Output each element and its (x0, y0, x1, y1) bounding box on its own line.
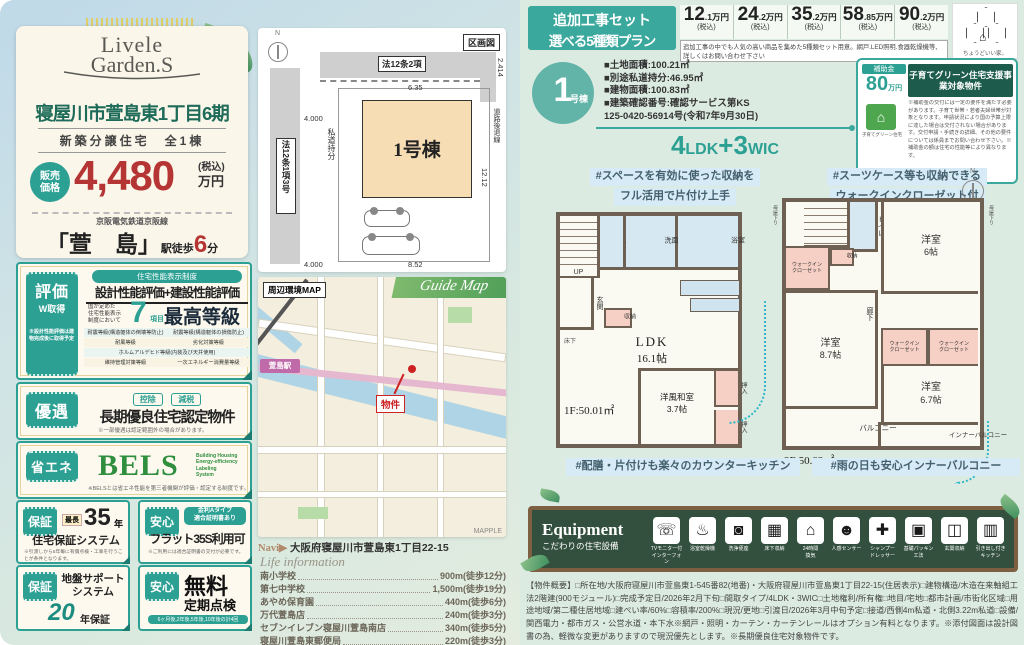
tab-label: 評価 (26, 278, 78, 302)
stairs-1f: UP (560, 216, 600, 278)
badge-tab-anshin2: 安心 (145, 572, 179, 601)
washlet-icon: ◙ (725, 517, 752, 544)
equip-label2: インターフォン (652, 553, 682, 566)
badge-ground-support: 保証 地盤サポート システム 20 年保証 (16, 565, 130, 631)
wic-label2: クローゼット (930, 347, 978, 353)
wic-label-wrap: ウォークインクローゼット (930, 341, 978, 354)
inspection-label: 定期点検 (184, 595, 236, 614)
tax-cut-pill: 減税 (171, 393, 201, 406)
life-item: 南小学校900m(徒歩12分) (260, 570, 506, 583)
dim-right: 12.12 (480, 168, 489, 187)
bels-sub4: System (196, 472, 238, 478)
perf-item: 耐震等級(構造躯体の倒壊等防止) (84, 328, 167, 337)
equipment-title: Equipment (542, 520, 623, 540)
bedroom-size: 8.7帖 (786, 350, 875, 361)
guide-map-title: Guide Map (418, 278, 489, 294)
wic-label2: クローゼット (883, 347, 926, 353)
poi-distance: 220m (445, 635, 468, 645)
subsidy-amount: 補助金 80万円 (862, 64, 906, 95)
long-term-housing-label: 長期優良住宅認定物件 (84, 406, 250, 427)
badge-tab-shouene: 省エネ (26, 451, 78, 482)
equip-label: 床下収納 (764, 546, 784, 552)
equip-label: 玄関収納 (944, 546, 964, 552)
price-tax: (税込) (841, 24, 894, 31)
price-main: 12 (684, 4, 705, 25)
station-access: 「萱 島」駅徒歩6分 (16, 225, 248, 259)
navi-address-text: 大阪府寝屋川市萱島東1丁目22-15 (290, 542, 449, 554)
leader-dots (388, 622, 443, 632)
price-label-1: 販売 (30, 171, 70, 183)
map-credit: MAPPLE (474, 528, 502, 535)
additional-works-banner: 追加工事セット 選べる5種類プラン (528, 6, 676, 50)
warranty-years-unit: 年 (114, 517, 123, 530)
banner-line2: 選べる5種類プラン (528, 30, 676, 50)
plan1f-caption-bottom: #配膳・片付けも楽々のカウンターキッチン (566, 458, 800, 476)
site-plan-card: 区画図 N 法12条2項 法12条1項3号 私道持分 道路後退線 1号棟 6.3… (258, 28, 506, 272)
map-road (258, 447, 506, 453)
poi-walk: (徒歩6分) (468, 596, 506, 609)
poi-name: 南小学校 (260, 570, 296, 583)
price-tax: (税込) (198, 162, 225, 174)
equipment-subtitle: こだわりの住宅設備 (542, 540, 623, 552)
spec-private-road: ■別途私道持分:46.95㎡ (604, 73, 854, 86)
price-sub: .2万円 (920, 12, 944, 22)
map-road (438, 277, 443, 537)
price-sub: .1万円 (705, 12, 729, 22)
road-dashed-line (320, 80, 480, 82)
guide-map: 萱島駅 物件 Guide Map 周辺環境MAP MAPPLE (258, 277, 506, 537)
poi-walk: (徒歩19分) (463, 583, 506, 596)
price-sub: .2万円 (759, 12, 783, 22)
ground-line2: システム (60, 586, 126, 599)
flat35-pill: 金利Aタイプ 適合証明書あり (184, 507, 246, 525)
drawer-kitchen-icon: ▥ (977, 517, 1004, 544)
property-overview-text: 【物件概要】□所在地/大阪府寝屋川市萱島東1-545番82(地番)・大阪府寝屋川… (526, 580, 1018, 644)
poi-distance: 340m (445, 622, 468, 635)
equipment-title-block: Equipment こだわりの住宅設備 (542, 520, 623, 552)
building-number-badge: 1 号棟 (532, 62, 594, 124)
bels-sub2: Energy-efficiency (196, 459, 238, 465)
certificate: 適合証明書あり (184, 516, 246, 524)
station-walk-unit: 分 (207, 243, 218, 255)
perf-row: ホルムアルデヒド等級(内装及び天井使用) (84, 348, 250, 357)
equip-drawer-kitchen: ▥引き出し付きキッチン (974, 517, 1007, 559)
layout-4: 4 (671, 130, 685, 160)
plan-prices: 12.1万円(税込) 24.2万円(税込) 35.2万円(税込) 58.85万円… (680, 5, 948, 39)
equip-bath-dryer: ♨浴室乾燥機 (686, 517, 719, 553)
rate-type: 金利Aタイプ (184, 508, 246, 516)
navi-address: Navi▶ 大阪府寝屋川市萱島東1丁目22-15 (258, 540, 506, 555)
equip-label: 人感センサー (831, 546, 861, 552)
poi-distance: 440m (445, 596, 468, 609)
price-main: 35 (791, 4, 812, 25)
equip-entrance-storage: ◫玄関収納 (938, 517, 971, 553)
divider (32, 212, 232, 214)
bathroom-1f: 浴室 (678, 216, 738, 270)
caption-line1: #スーツケース等も収納できる (827, 168, 987, 186)
badge-tab-yuuguu: 優遇 (26, 392, 78, 428)
performance-pre-text: 国が定めた 住宅性能表示 制度において (88, 304, 128, 325)
spec-confirmation-1: ■建築確認番号:確認サービス第KS (604, 98, 854, 111)
station-marker: 萱島駅 (260, 359, 300, 373)
plan-price: 24.2万円(税込) (733, 5, 787, 39)
perf-item: 耐震等級(構造躯体の損傷防止) (167, 328, 250, 337)
equip-motion-sensor: ☻人感センサー (830, 517, 863, 553)
park-patch (298, 507, 328, 519)
underfloor-storage-icon: ▦ (761, 517, 788, 544)
life-info-title: Life information (260, 554, 506, 570)
perf-item: 維持管理対策等級 (84, 358, 167, 367)
performance-items-table: 耐震等級(構造躯体の倒壊等防止)耐震等級(構造躯体の損傷防止) 耐風等級劣化対策… (84, 328, 250, 368)
leader-dots (307, 583, 430, 593)
plan-price: 35.2万円(税込) (787, 5, 841, 39)
tab-note: ※設計性能評価は建物完成後に取得予定 (26, 329, 78, 342)
building-1-label: 1号棟 (363, 135, 471, 162)
plan-price: 12.1万円(税込) (680, 5, 733, 39)
bels-note: ※BELSとは省エネ性能を第三者機関が評価・認定する制度です。 (88, 484, 249, 492)
poi-distance: 1,500m (432, 583, 463, 596)
bels-wordmark: BELS (98, 449, 179, 483)
hexagon-icon (988, 23, 1006, 43)
wic-2f: ウォークインクローゼット (928, 328, 978, 366)
bedroom-87-label-wrap: 洋室8.7帖 (786, 338, 875, 362)
floor-plan-1f: UP トイレ 洗面所 浴室 玄関 床下 収納 LDK 16.1帖 洋風和室 3.… (556, 212, 742, 448)
leader-dots (298, 570, 438, 580)
bedroom-size: 6帖 (884, 247, 978, 258)
tab-label: 保証 (28, 515, 52, 529)
shampoo-dresser-icon: ✚ (869, 517, 896, 544)
layout-ldk: LDK (685, 141, 718, 158)
storage-label: 収納 (842, 254, 862, 261)
ldk-label: LDK (622, 334, 682, 350)
toilet-2f: トイレ (850, 202, 878, 252)
equip-label: TVモニター付 (651, 546, 682, 552)
bedroom-67-label-wrap: 洋室6.7帖 (884, 382, 978, 406)
equip-packing-method: ▣基礎パッキン工法 (902, 517, 935, 559)
caption-line1: #スペースを有効に使った収納を (590, 168, 761, 186)
guide-map-banner: Guide Map (392, 277, 506, 298)
equip-shampoo-dresser: ✚シャンプードレッサー (866, 517, 899, 559)
flat35-label: フラット35S利用可 (146, 530, 248, 547)
warranty-years: 35 (84, 504, 111, 532)
spec-confirmation-2: 125-0420-56914号(令和7年9月30日) (604, 111, 854, 124)
perf-row: 耐風等級劣化対策等級 (84, 338, 250, 347)
deduction-pill: 控除 (133, 393, 163, 406)
hexagon-icon (977, 7, 995, 27)
perf-row: 耐震等級(構造躯体の倒壊等防止)耐震等級(構造躯体の損傷防止) (84, 328, 250, 337)
entrance-label: 玄関 (572, 296, 603, 310)
equip-label: 洗浄便座 (728, 546, 748, 552)
badge-tab-hoshou2: 保証 (23, 572, 57, 601)
poi-distance: 240m (445, 609, 468, 622)
price-label-badge: 販売 価格 (30, 162, 70, 202)
plan1f-caption-top: #スペースを有効に使った収納を フル活用で片付け上手 (570, 166, 780, 206)
plan-price: 90.2万円(税込) (894, 5, 948, 39)
layout-3: 3 (733, 130, 747, 160)
navi-prefix: Navi▶ (258, 543, 287, 554)
badge-flat35s: 安心 金利Aタイプ 適合証明書あり フラット35S利用可 ※ご利用には適合証明書… (138, 500, 252, 564)
perf-item: 劣化対策等級 (167, 338, 250, 347)
property-marker: 物件 (376, 395, 405, 413)
poi-walk: (徒歩3分) (468, 635, 506, 645)
toilet-1f: トイレ (600, 216, 626, 270)
yuuguu-note: ※一部優遇は認定範囲外の場合があります。 (98, 426, 207, 434)
spec-building-area: ■建物面積:100.83㎡ (604, 85, 854, 98)
wic-2f: ウォークインクローゼット (786, 246, 830, 290)
subsidy-unit: 万円 (888, 85, 902, 92)
price-label-2: 価格 (30, 183, 70, 195)
pre3: 制度において (88, 318, 128, 325)
surroundings-map-label: 周辺環境MAP (263, 282, 326, 298)
floor-plan-2f: トイレ 洋室6帖 ウォークインクローゼット 収納 廊下 洋室8.7帖 ウォークイ… (782, 198, 984, 450)
price-main: 90 (899, 4, 920, 25)
equip-label: 基礎パッキン (904, 546, 934, 552)
kitchen-counter (680, 280, 740, 296)
life-information: Life information 南小学校900m(徒歩12分) 第七中学校1,… (260, 554, 506, 645)
floor-layout: 4LDK+3WIC (640, 130, 810, 161)
station-name: 「萱 島」 (46, 231, 161, 257)
price-main: 58 (843, 4, 864, 25)
perf-row: 維持管理対策等級一次エネルギー消費量等級 (84, 358, 250, 367)
entrance-1f: 玄関 (560, 278, 594, 330)
dim-left: 4.000 (304, 114, 323, 123)
life-item: 寝屋川萱島東郵便局220m(徒歩3分) (260, 635, 506, 645)
layout-plus: + (718, 130, 733, 160)
stairs-up-label: UP (560, 269, 597, 276)
house-icon: ⌂ (979, 30, 986, 44)
bathroom-label: 浴室 (708, 237, 768, 246)
price-unit: (税込) 万円 (198, 162, 225, 190)
warranty-note: ※引渡しから5年毎に有償点検・工事を行うことが条件となります。 (24, 548, 124, 562)
area-1f: 1F:50.01㎡ (564, 402, 614, 418)
building-suffix: 号棟 (570, 92, 588, 105)
caption-line2: フル活用で片付け上手 (614, 188, 736, 206)
setback-line-label: 道路後退線 (491, 108, 501, 143)
building-specs: ■土地面積:100.21㎡ ■別途私道持分:46.95㎡ ■建物面積:100.8… (604, 60, 854, 124)
station-name-label: 萱島駅 (269, 361, 292, 370)
compass-icon (268, 42, 288, 62)
equip-label: シャンプー (870, 546, 895, 552)
station-walk-minutes: 6 (194, 231, 207, 258)
layout-wic: WIC (748, 141, 779, 158)
brand-tagline: ちょうどいい家。 (953, 49, 1017, 57)
badge-long-term-certified: 優遇 控除 減税 長期優良住宅認定物件 ※一部優遇は認定範囲外の場合があります。 (16, 382, 252, 440)
poi-name: 万代萱島店 (260, 609, 305, 622)
flyer-page: Livele Garden.S 寝屋川市萱島東1丁目6期 新築分譲住宅 全1棟 … (0, 0, 1024, 645)
stairs-2f (804, 202, 850, 248)
storage-label: 収納 (618, 314, 642, 322)
equip-underfloor-storage: ▦床下収納 (758, 517, 791, 553)
compass-n-label: N (275, 30, 280, 37)
badge-bels: 省エネ BELS Building Housing Energy-efficie… (16, 441, 252, 499)
poi-walk: (徒歩12分) (463, 570, 506, 583)
equip-24h-ventilation: ⌂24時間換気 (794, 517, 827, 559)
price-tax: (税込) (788, 24, 841, 31)
poi-name: セブンイレブン寝屋川萱島南店 (260, 622, 386, 635)
equip-intercom: ☏TVモニター付インターフォン (650, 517, 683, 566)
subsidy-title: 子育てグリーン住宅支援事業対象物件 (908, 64, 1013, 97)
brand-mark: ⌂ ちょうどいい家。 (952, 3, 1018, 59)
compass-n-label: N (970, 168, 975, 175)
car-icon (362, 236, 420, 255)
plan2f-caption-bottom: #雨の日も安心インナーバルコニー (812, 458, 1020, 476)
banner-line1: 追加工事セット (528, 10, 676, 30)
equip-label: 引き出し付き (975, 546, 1005, 552)
bedroom-size: 6.7帖 (884, 395, 978, 406)
bedroom-6: 洋室6帖 (881, 202, 978, 294)
balcony: バルコニー (786, 406, 878, 446)
japanese-room-label-wrap: 洋風和室 3.7帖 (641, 391, 713, 415)
logo-line2: Garden.S (16, 54, 248, 76)
plan-price: 58.85万円(税込) (840, 5, 894, 39)
underfloor-label: 床下 (564, 336, 576, 345)
price-sub: .85万円 (864, 12, 893, 22)
deduction-pills: 控除 減税 (84, 389, 250, 407)
equip-label: 24時間 (803, 546, 819, 552)
flat35-note: ※ご利用には適合証明書の交付が必要です。 (148, 548, 248, 555)
tab-label: 安心 (150, 580, 174, 594)
ground-support-label: 地盤サポート システム (60, 573, 126, 598)
motion-sensor-icon: ☻ (833, 517, 860, 544)
poi-name: あやめ保育園 (260, 596, 314, 609)
warranty-system-label: 住宅保証システム (26, 532, 126, 548)
bath-dryer-icon: ♨ (689, 517, 716, 544)
equip-label2: 換気 (805, 553, 815, 559)
tab-label: 安心 (150, 515, 174, 529)
dim-right-top: 2.414 (496, 58, 505, 77)
building-number: 1 (532, 62, 594, 118)
perf-item: 一次エネルギー消費量等級 (167, 358, 250, 367)
equip-label2: キッチン (980, 553, 1000, 559)
storage-1f: 収納 (604, 308, 632, 328)
seven-items-number: 7 (130, 296, 147, 330)
map-road (258, 492, 506, 497)
spec-land-area: ■土地面積:100.21㎡ (604, 60, 854, 73)
ground-years: 20 (48, 599, 75, 627)
equipment-bar: Equipment こだわりの住宅設備 ☏TVモニター付インターフォン ♨浴室乾… (528, 506, 1018, 572)
storage-2f: 収納 (830, 248, 854, 266)
leader-dots (307, 609, 443, 619)
price-sub: .2万円 (813, 12, 837, 22)
badge-tab-hyouka: 評価 W取得 ※設計性能評価は建物完成後に取得予定 (26, 272, 78, 376)
tab-label: 優遇 (26, 398, 78, 422)
price-row: 販売 価格 4,480 (税込) 万円 (30, 156, 234, 208)
bedroom-6-label-wrap: 洋室6帖 (884, 235, 978, 259)
spec-underline (596, 127, 852, 129)
highest-grade-label: 最高等級 (164, 302, 240, 329)
bedroom-67: 洋室6.7帖 (881, 366, 978, 422)
perf-item: ホルムアルデヒド等級(内装及び天井使用) (84, 348, 250, 357)
park-patch (448, 307, 472, 323)
performance-evaluation-line: 設計性能評価+建設性能評価 (86, 282, 248, 304)
ventilation-icon: ⌂ (797, 517, 824, 544)
bedroom-label: 洋室 (786, 338, 875, 351)
price-unit-label: 万円 (198, 174, 225, 190)
property-title: 寝屋川市萱島東1丁目6期 (16, 100, 248, 126)
poi-name: 寝屋川萱島東郵便局 (260, 635, 341, 645)
livele-garden-logo: Livele Garden.S (16, 34, 248, 82)
road-north-label: 法12条2項 (378, 56, 426, 72)
price-value: 4,480 (74, 152, 174, 200)
poi-walk: (徒歩3分) (468, 609, 506, 622)
map-road (318, 277, 324, 537)
badge-35year-warranty: 保証 最長 35 年 住宅保証システム ※引渡しから5年毎に有償点検・工事を行う… (16, 500, 130, 564)
price-tax: (税込) (734, 24, 787, 31)
leader-dots (343, 635, 443, 645)
subsidy-value: 80 (866, 73, 888, 95)
green-house-caption: 子育てグリーン住宅 (860, 132, 904, 138)
wic-2f: ウォークインクローゼット (881, 328, 928, 366)
tab-label: 保証 (28, 580, 52, 594)
green-house-icon: ⌂ (866, 104, 896, 130)
ground-line1: 地盤サポート (60, 573, 126, 586)
equip-washlet: ◙洗浄便座 (722, 517, 755, 553)
poi-distance: 900m (440, 570, 463, 583)
price-tax: (税込) (895, 24, 948, 31)
price-tax: (税込) (680, 24, 733, 31)
dim-top: 6.35 (408, 83, 423, 92)
station-walk-label: 駅徒歩 (161, 243, 194, 255)
equip-label2: ドレッサー (870, 553, 895, 559)
poi-walk: (徒歩5分) (468, 622, 506, 635)
badge-free-inspection: 安心 無料 定期点検 6ヶ月後,2年後,5年後,10年後の計4回 (138, 565, 252, 631)
bedroom-label: 洋室 (884, 382, 978, 395)
roof-slope-label: 母屋下り (772, 205, 779, 225)
property-title-card: Livele Garden.S 寝屋川市萱島東1丁目6期 新築分譲住宅 全1棟 … (16, 26, 248, 258)
seven-items-unit: 項目 (150, 314, 164, 324)
japanese-room-size: 3.7帖 (641, 403, 713, 415)
ldk-room: LDK 16.1帖 (622, 334, 682, 366)
poi-name: 第七中学校 (260, 583, 305, 596)
japanese-room-label: 洋風和室 (641, 391, 713, 403)
tab-label: 省エネ (26, 457, 78, 476)
property-location-dot (408, 365, 416, 373)
intercom-icon: ☏ (653, 517, 680, 544)
ldk-size: 16.1帖 (622, 350, 682, 366)
bels-subtitle: Building Housing Energy-efficiency Label… (196, 453, 238, 478)
life-item: 万代萱島店240m(徒歩3分) (260, 609, 506, 622)
life-item: 第七中学校1,500m(徒歩19分) (260, 583, 506, 596)
packing-method-icon: ▣ (905, 517, 932, 544)
site-plan-title: 区画図 (463, 34, 500, 51)
wic-label-wrap: ウォークインクローゼット (883, 341, 926, 354)
entrance-storage-icon: ◫ (941, 517, 968, 544)
leader-dots (316, 596, 443, 606)
life-item: あやめ保育園440m(徒歩6分) (260, 596, 506, 609)
building-1-footprint: 1号棟 (362, 100, 472, 198)
roof-slope-label: 母屋下り (988, 205, 995, 225)
perf-item: 耐風等級 (84, 338, 167, 347)
ground-years-unit: 年保証 (80, 611, 110, 626)
inspection-schedule: 6ヶ月後,2年後,5年後,10年後の計4回 (148, 615, 248, 624)
car-icon (364, 210, 410, 227)
price-main: 24 (738, 4, 759, 25)
badge-performance-evaluation: 評価 W取得 ※設計性能評価は建物完成後に取得予定 住宅性能表示制度 設計性能評… (16, 262, 252, 380)
tab-sublabel: W取得 (26, 302, 78, 315)
dim-bottom-left: 4.000 (304, 260, 323, 269)
japanese-room-1f: 洋風和室 3.7帖 押入 押入 (638, 368, 738, 444)
equip-label2: 工法 (913, 553, 923, 559)
dim-bottom: 8.52 (408, 260, 423, 269)
washroom-1f: 洗面所 (626, 216, 678, 270)
life-item: セブンイレブン寝屋川萱島南店340m(徒歩5分) (260, 622, 506, 635)
property-marker-label: 物件 (381, 400, 400, 411)
bedroom-87: 洋室8.7帖 (786, 290, 878, 406)
wic-label2: クローゼット (786, 268, 828, 274)
max-label: 最長 (62, 514, 82, 526)
property-subtitle: 新築分譲住宅 全1棟 (38, 128, 226, 153)
private-road-share-label: 私道持分 (326, 128, 337, 160)
